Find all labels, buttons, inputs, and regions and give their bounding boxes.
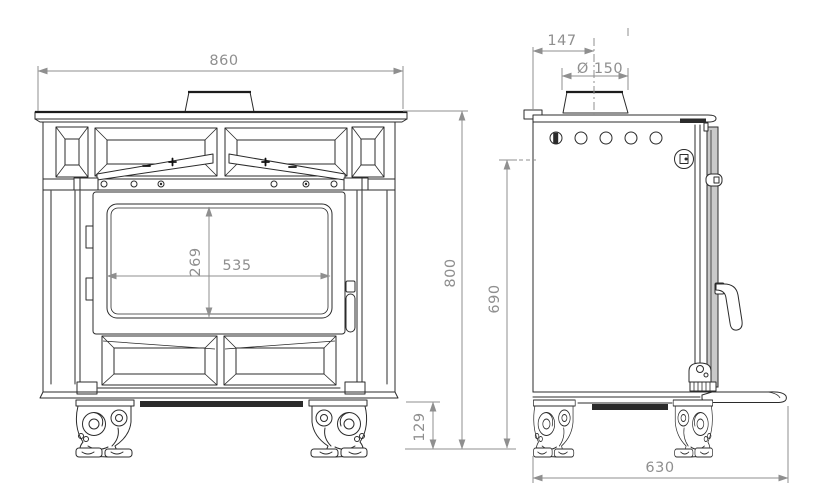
dim-glass-width-label: 535 (222, 258, 251, 274)
lower-panel-left (102, 336, 217, 385)
dim-depth-label: 630 (645, 460, 674, 476)
stove-door[interactable] (86, 192, 355, 334)
dim-front-height: 800 (403, 111, 516, 449)
dim-outlet-height: 690 (487, 160, 536, 448)
drawing-canvas: 860 800 129 269 535 (0, 0, 822, 502)
dim-front-height-label: 800 (443, 258, 459, 287)
side-view: 147 Ø 150 690 630 (487, 28, 788, 483)
lower-panel-right (224, 336, 336, 385)
front-frieze-panels (56, 127, 384, 177)
dim-front-width-label: 860 (209, 53, 238, 69)
side-door-handle[interactable] (715, 283, 742, 330)
dim-flue-offset-label: 147 (547, 33, 576, 49)
frieze-panel-right-small (352, 127, 384, 177)
side-flue-collar (563, 92, 628, 113)
frieze-panel-left-small (56, 127, 88, 177)
bolt-band (74, 178, 368, 190)
dim-leg-height-label: 129 (412, 412, 428, 441)
door-handle[interactable] (346, 281, 355, 332)
front-flue-collar (185, 92, 254, 112)
side-latch (706, 174, 722, 186)
front-feet (76, 400, 367, 457)
front-view: 860 800 129 269 535 (35, 53, 516, 457)
damper-wheel[interactable] (553, 133, 558, 144)
dim-glass-height-label: 269 (188, 247, 204, 276)
dim-outlet-height-label: 690 (487, 284, 503, 313)
front-top-plate (35, 112, 407, 122)
door-hinge-bottom (86, 278, 93, 300)
dim-flue-diameter: Ø 150 (562, 61, 628, 90)
dim-flue-diameter-label: Ø 150 (577, 61, 623, 77)
side-control-knob[interactable] (675, 150, 694, 169)
door-hinge-top (86, 226, 93, 248)
dim-leg-height: 129 (406, 402, 440, 449)
stove-technical-drawing: 860 800 129 269 535 (0, 0, 822, 502)
door-edge-profile (707, 127, 718, 387)
side-vent-holes (550, 132, 662, 144)
lower-panels (77, 336, 365, 394)
